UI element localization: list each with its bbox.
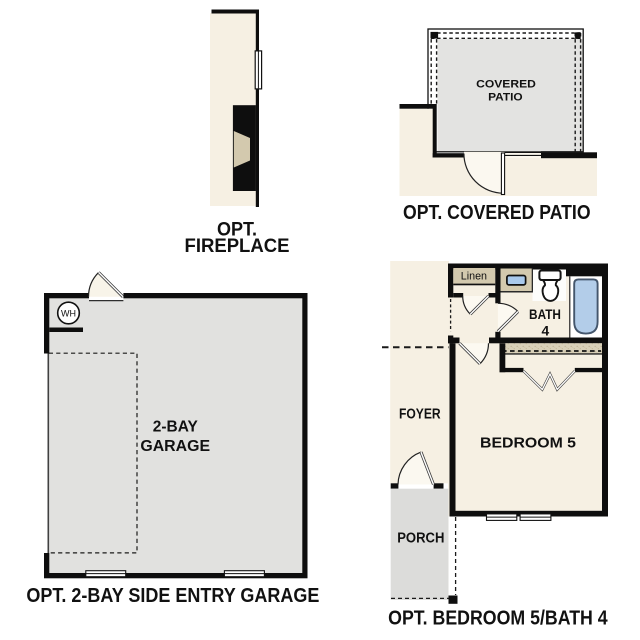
- svg-text:Linen: Linen: [461, 271, 487, 283]
- svg-text:PORCH: PORCH: [397, 530, 444, 546]
- svg-text:BATH: BATH: [529, 307, 561, 322]
- svg-text:2-BAY: 2-BAY: [153, 419, 198, 436]
- svg-text:GARAGE: GARAGE: [140, 438, 210, 455]
- svg-text:WH: WH: [61, 309, 76, 320]
- svg-text:4: 4: [541, 323, 549, 338]
- svg-text:COVERED: COVERED: [476, 78, 536, 90]
- svg-text:OPT. COVERED PATIO: OPT. COVERED PATIO: [403, 202, 591, 224]
- svg-text:OPT. 2-BAY SIDE ENTRY GARAGE: OPT. 2-BAY SIDE ENTRY GARAGE: [26, 584, 319, 607]
- svg-text:FIREPLACE: FIREPLACE: [185, 235, 290, 257]
- svg-text:PATIO: PATIO: [488, 92, 523, 104]
- svg-text:BEDROOM 5: BEDROOM 5: [480, 435, 576, 451]
- svg-text:FOYER: FOYER: [399, 406, 441, 422]
- svg-text:OPT. BEDROOM 5/BATH 4: OPT. BEDROOM 5/BATH 4: [388, 608, 608, 630]
